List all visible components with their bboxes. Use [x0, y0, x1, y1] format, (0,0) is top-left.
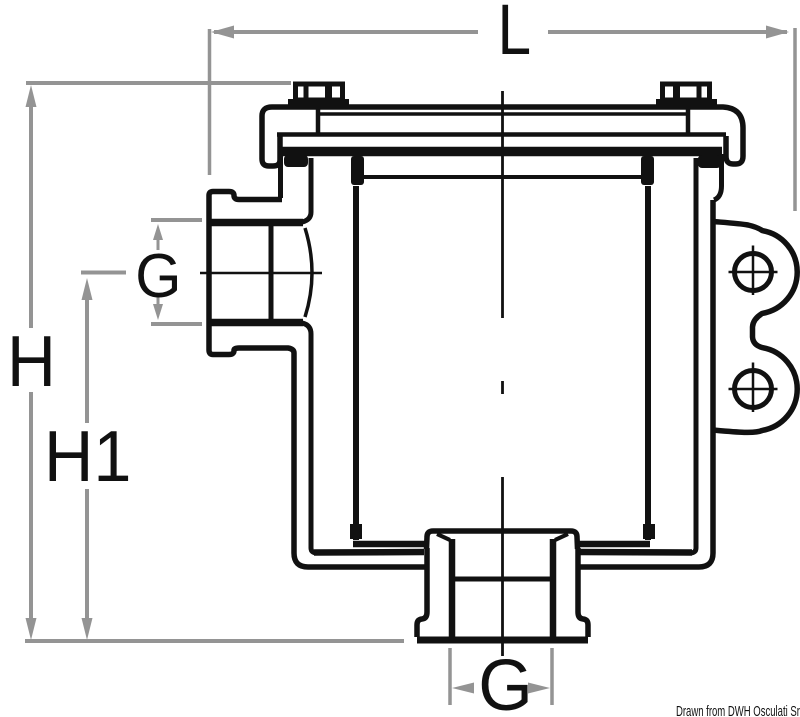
svg-text:H: H: [7, 321, 56, 401]
svg-text:G: G: [135, 241, 181, 311]
svg-text:L: L: [498, 0, 532, 69]
svg-text:H1: H1: [44, 415, 131, 496]
svg-text:G: G: [478, 645, 533, 717]
svg-text:Drawn from DWH Osculati Srl: Drawn from DWH Osculati Srl: [676, 703, 800, 717]
